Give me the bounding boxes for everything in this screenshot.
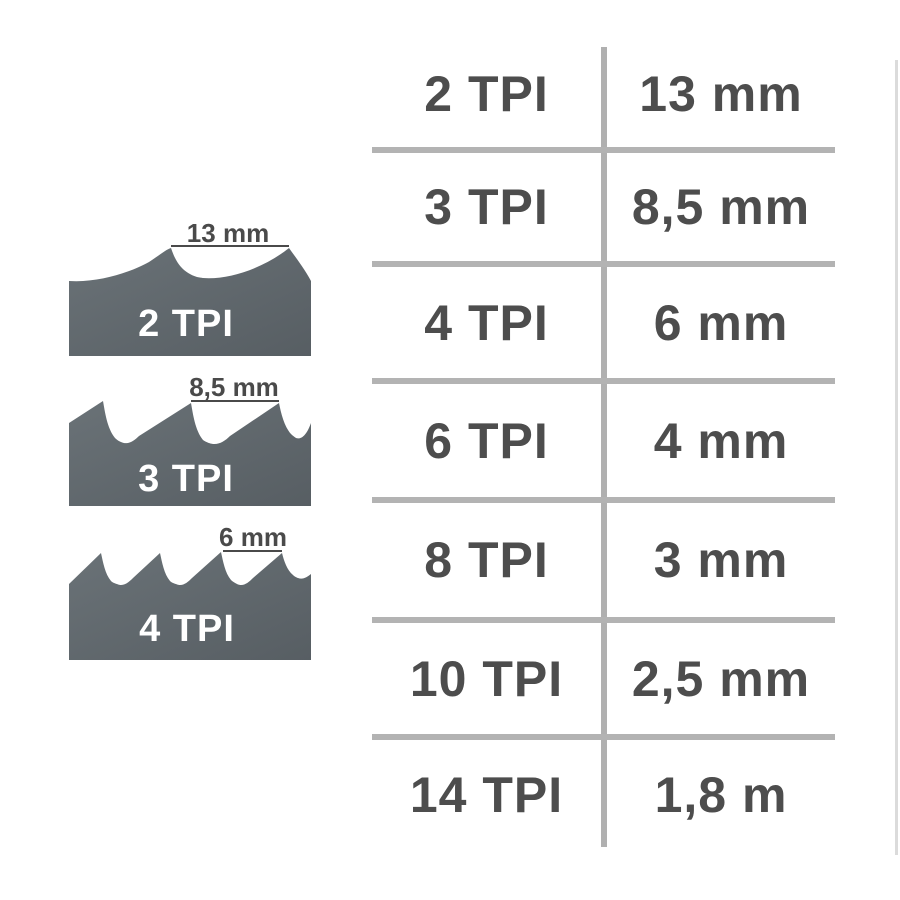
tpi-value: 2 TPI <box>372 40 601 147</box>
blade-3tpi-label: 3 TPI <box>138 460 234 498</box>
tpi-value: 14 TPI <box>372 740 601 850</box>
table-row: 8 TPI 3 mm <box>372 503 835 617</box>
width-value: 13 mm <box>607 40 835 147</box>
table-row: 4 TPI 6 mm <box>372 267 835 378</box>
bandsaw-tpi-infographic: 13 mm 2 TPI 8,5 mm 3 TPI 6 mm <box>0 0 900 900</box>
image-right-edge-line <box>895 60 898 855</box>
table-row: 10 TPI 2,5 mm <box>372 623 835 734</box>
table-row: 2 TPI 13 mm <box>372 40 835 147</box>
tpi-value: 4 TPI <box>372 267 601 378</box>
width-value: 3 mm <box>607 503 835 617</box>
table-row: 14 TPI 1,8 m <box>372 740 835 850</box>
width-value: 6 mm <box>607 267 835 378</box>
width-value: 8,5 mm <box>607 153 835 261</box>
blade-3tpi-measure-label: 8,5 mm <box>189 374 279 400</box>
blade-4tpi-measure-label: 6 mm <box>219 524 287 550</box>
blade-2tpi-measure-label: 13 mm <box>187 220 269 246</box>
tpi-value: 3 TPI <box>372 153 601 261</box>
tpi-value: 6 TPI <box>372 384 601 497</box>
width-value: 2,5 mm <box>607 623 835 734</box>
tpi-value: 10 TPI <box>372 623 601 734</box>
table-row: 3 TPI 8,5 mm <box>372 153 835 261</box>
tpi-value: 8 TPI <box>372 503 601 617</box>
table-row: 6 TPI 4 mm <box>372 384 835 497</box>
width-value: 1,8 m <box>607 740 835 850</box>
blade-4tpi-label: 4 TPI <box>139 610 235 648</box>
width-value: 4 mm <box>607 384 835 497</box>
blade-2tpi-label: 2 TPI <box>138 305 234 343</box>
